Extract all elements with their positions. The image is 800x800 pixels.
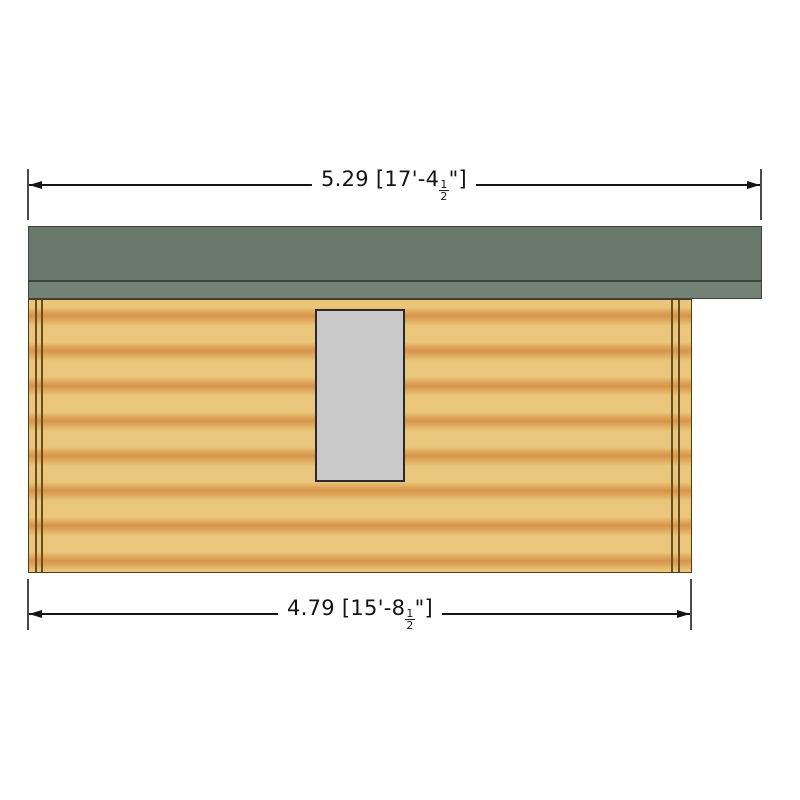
top-dimension-extension-line-right	[760, 169, 762, 220]
bottom-dimension-extension-line-right	[690, 579, 692, 630]
top-dimension-metric-value: 5.29	[321, 167, 369, 191]
top-dimension-fraction-numerator: 1	[439, 179, 448, 190]
top-dimension-label: 5.29 [17'-412"]	[312, 167, 476, 203]
corner-post-left-outer	[35, 300, 37, 572]
roof-top-surface	[29, 227, 761, 280]
roof-fascia	[29, 282, 761, 298]
top-dimension-imperial-prefix: [17'-4	[369, 167, 439, 191]
corner-post-left-inner	[41, 300, 43, 572]
corner-post-right-inner	[678, 300, 680, 572]
bottom-dimension-fraction-numerator: 1	[405, 608, 414, 619]
bottom-dimension-arrow-left	[29, 610, 42, 618]
top-dimension-imperial-suffix: "]	[449, 167, 467, 191]
top-dimension-extension-line-left	[27, 169, 29, 220]
drawing-canvas: 5.29 [17'-412"] 4.79 [15'-812"]	[0, 0, 800, 800]
top-dimension-fraction: 12	[439, 179, 448, 203]
bottom-dimension-imperial-prefix: [15'-8	[335, 596, 405, 620]
bottom-dimension-imperial-suffix: "]	[415, 596, 433, 620]
corner-post-right-outer	[671, 300, 673, 572]
bottom-dimension-arrow-right	[677, 610, 690, 618]
bottom-dimension-metric-value: 4.79	[287, 596, 335, 620]
window	[315, 309, 405, 482]
bottom-dimension-fraction: 12	[405, 608, 414, 632]
top-dimension-fraction-denominator: 2	[439, 190, 448, 202]
bottom-dimension-label: 4.79 [15'-812"]	[278, 596, 442, 632]
top-dimension-arrow-left	[29, 181, 42, 189]
roof	[28, 226, 762, 299]
bottom-dimension-fraction-denominator: 2	[405, 619, 414, 631]
top-dimension-arrow-right	[747, 181, 760, 189]
bottom-dimension-extension-line-left	[27, 579, 29, 630]
